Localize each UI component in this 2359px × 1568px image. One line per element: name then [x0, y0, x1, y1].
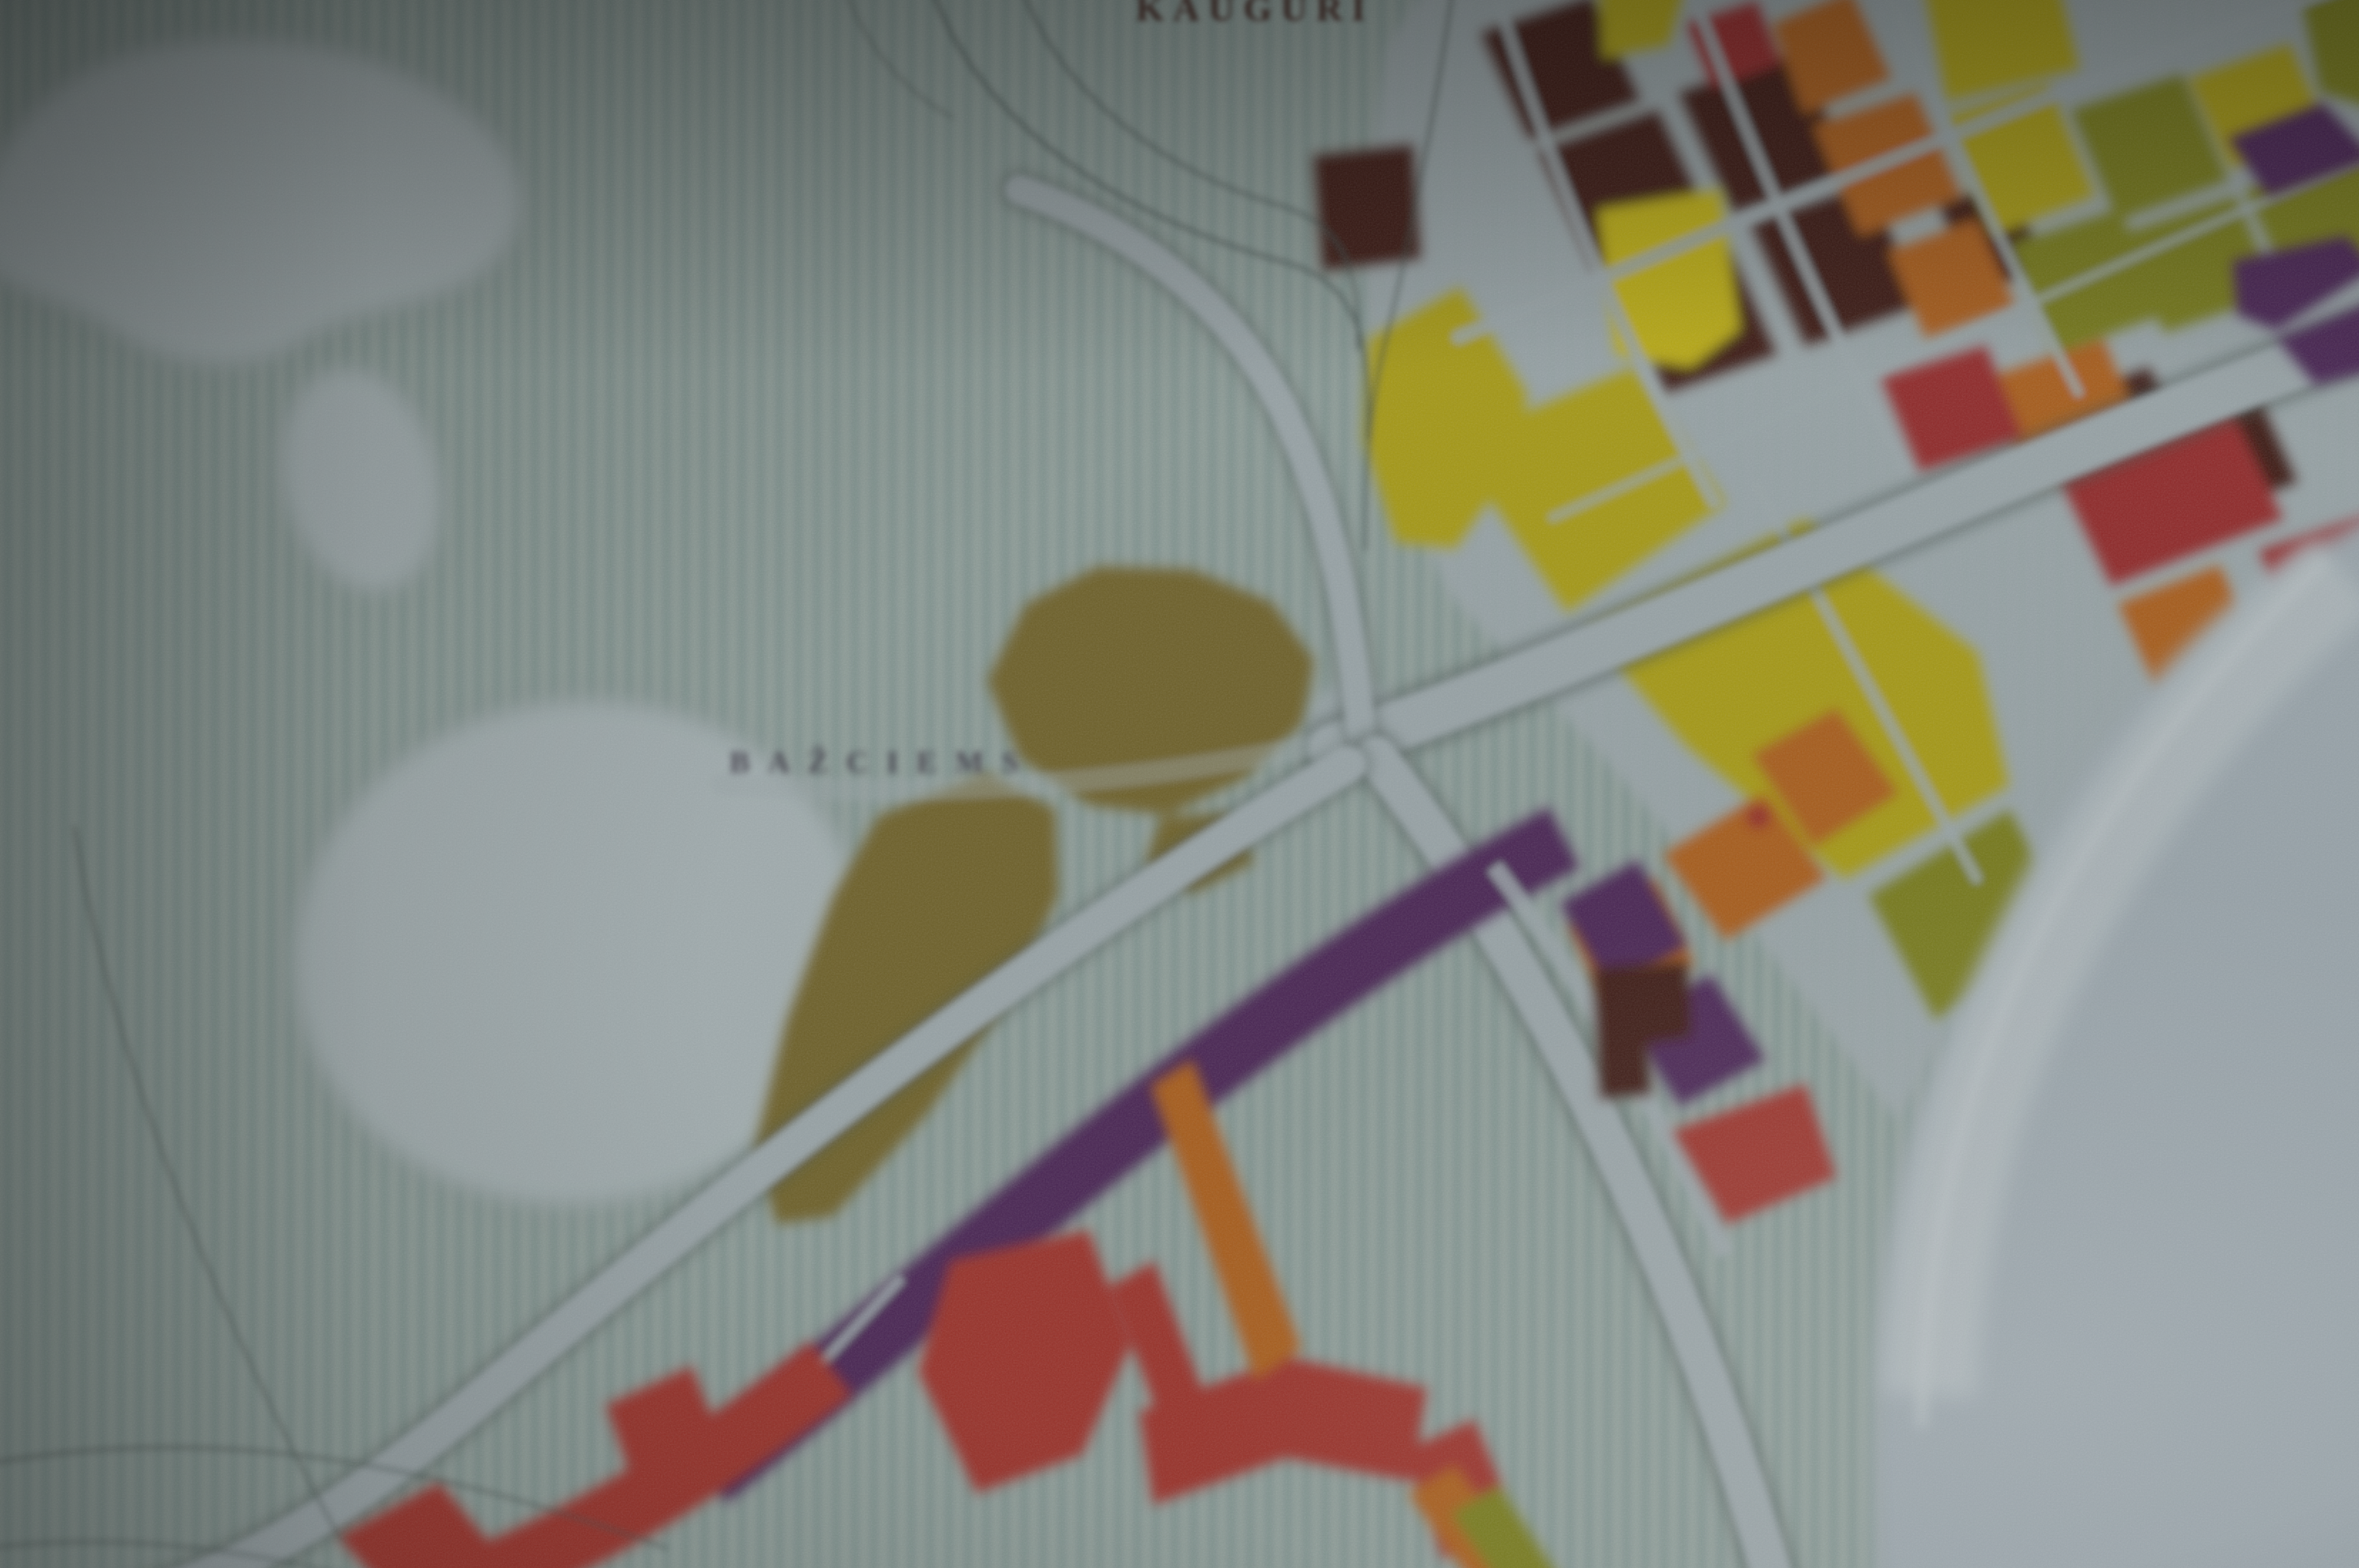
zoning-map-graphic: [0, 0, 2359, 1568]
map-photo: KAUGURI BAŽCIEMS: [0, 0, 2359, 1568]
photo-noise: [0, 0, 2359, 1568]
